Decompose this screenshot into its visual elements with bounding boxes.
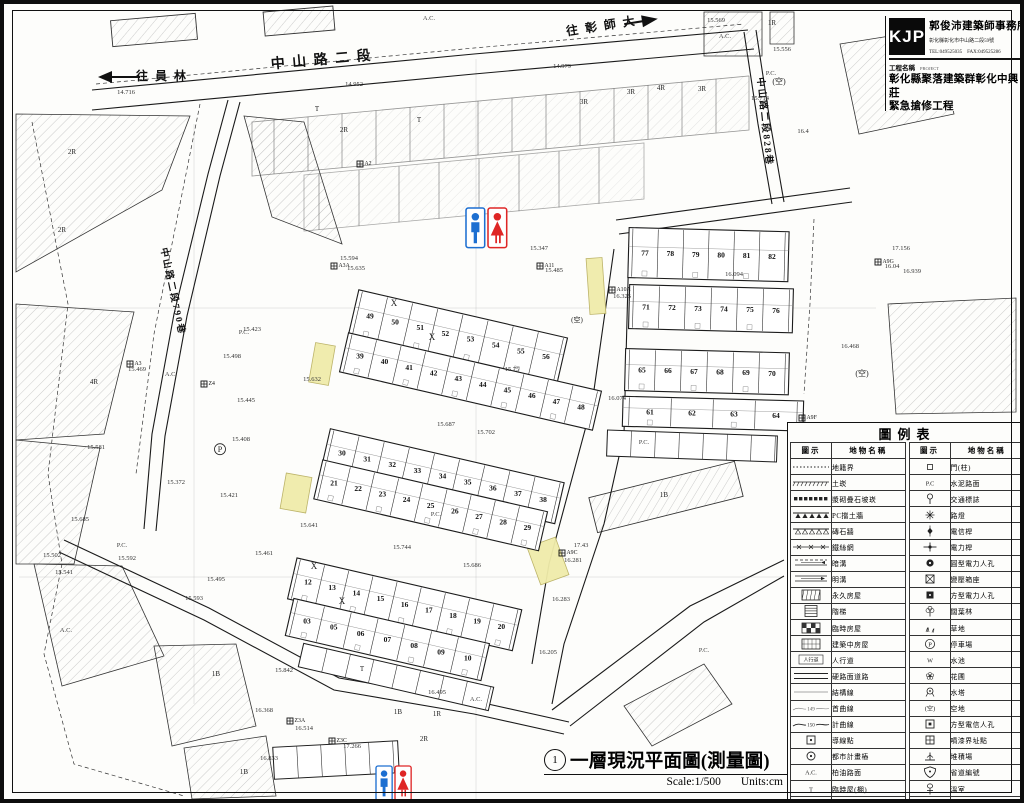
plot-number: 66 — [664, 366, 672, 375]
project-name: 彰化縣聚落建築群彰化中興莊 緊急搶修工程 — [889, 73, 1021, 114]
blocks-symbol — [791, 491, 832, 507]
elevation-label: 14.979 — [553, 63, 571, 70]
legend-feature-name: 建築中房屋 — [832, 636, 906, 652]
drawing-number-badge: 1 — [544, 749, 566, 771]
plot-number: 63 — [730, 410, 738, 419]
survey-marker-code: A9C — [567, 550, 578, 556]
plot-number: 77 — [641, 249, 649, 258]
hatched-area — [624, 664, 732, 746]
hatched-building — [263, 6, 335, 36]
legend-row: 磚砌屋 — [791, 797, 906, 803]
survey-marker-code: A2 — [365, 161, 372, 167]
plot-number: 37 — [514, 489, 522, 498]
wtower-symbol — [909, 684, 950, 700]
sidewalk-symbol: 人行道 — [791, 652, 832, 668]
elevation-label: 15.445 — [237, 397, 255, 404]
legend-feature-name: 圓型電力人孔 — [950, 555, 1024, 571]
legend-row: 149首曲線 — [791, 700, 906, 716]
plot-number: 32 — [389, 460, 397, 469]
elevation-label: 16.074 — [608, 395, 627, 402]
plot-number: 55 — [517, 346, 525, 355]
legend-row: 電力桿 — [909, 539, 1024, 555]
legend-feature-name: 結構線 — [832, 684, 906, 700]
legend-row: 圓型電力人孔 — [909, 555, 1024, 571]
legend-row: 省道編號 — [909, 764, 1024, 780]
legend-row: 暗溝 — [791, 555, 906, 571]
plot-number: 33 — [414, 466, 422, 475]
plot-number: 72 — [668, 303, 676, 312]
plot-number: 78 — [667, 249, 675, 258]
surface-type-label: P.C. — [431, 511, 442, 518]
pole-t-symbol — [909, 523, 950, 539]
elevation-label: 16.094 — [725, 271, 744, 278]
grass-symbol — [909, 620, 950, 636]
plot-number: 07 — [384, 635, 392, 644]
ditch-dash-symbol — [791, 555, 832, 571]
plot-number: 69 — [742, 368, 750, 377]
elevation-label: 15.541 — [55, 569, 73, 576]
elevation-label: 15.461 — [255, 550, 273, 557]
hatch-box-symbol — [791, 587, 832, 603]
area-type-label: 1R — [768, 19, 777, 27]
svg-text:W: W — [927, 657, 933, 664]
elevation-label: 17.43 — [574, 542, 589, 549]
legend-feature-name: 變壓箱座 — [950, 571, 1024, 587]
plot-number: 80 — [717, 250, 725, 259]
textsym-symbol: W — [909, 652, 950, 668]
plot-number: 79 — [692, 250, 700, 259]
elevation-label: 16.368 — [255, 707, 273, 714]
elevation-label: 15.423 — [243, 326, 261, 333]
parkP-symbol: P — [909, 636, 950, 652]
xfence-symbol — [791, 539, 832, 555]
legend-feature-name: 電信桿 — [950, 523, 1024, 539]
cadastral-boundary-line — [804, 219, 814, 394]
contour2-symbol: 150 — [791, 716, 832, 732]
legend-row: 土崁 — [791, 475, 906, 491]
elevation-label: 16.281 — [564, 557, 582, 564]
brick-house-symbol — [791, 797, 832, 803]
stairs-symbol — [791, 603, 832, 619]
plot-number: 50 — [391, 317, 399, 326]
legend-row: 導線點 — [791, 732, 906, 748]
legend-row: 堆積場 — [909, 748, 1024, 764]
legend-row: 方型電信人孔 — [909, 716, 1024, 732]
drawing-title-bar: 1 一層現況平面圖(測量圖) Scale:1/500 Units:cm — [544, 747, 787, 797]
pole-e-symbol — [909, 539, 950, 555]
legend-feature-name: 空地 — [950, 700, 1024, 716]
project-label: 工程名稱 — [889, 62, 915, 72]
paint-pt-symbol — [909, 732, 950, 748]
dotted-symbol — [791, 459, 832, 475]
legend-feature-name: 人行道 — [832, 652, 906, 668]
legend-feature-name: 堆積場 — [950, 748, 1024, 764]
ditch-solid-symbol — [791, 571, 832, 587]
plot-number: 70 — [768, 369, 776, 378]
legend-col-symbol: 圖示 — [791, 443, 832, 459]
survey-marker: A9C — [559, 550, 578, 556]
plot-number: 51 — [417, 323, 425, 332]
legend-row: 地籍界 — [791, 459, 906, 475]
legend-row: 人行道人行道 — [791, 652, 906, 668]
transformer-symbol — [909, 571, 950, 587]
plot-number: 44 — [479, 380, 487, 389]
plot-number: 39 — [356, 352, 364, 361]
plot-number: 22 — [354, 484, 362, 493]
elevation-label: 15.641 — [300, 522, 318, 529]
area-type-label: 1B — [240, 768, 249, 776]
plot-number: 75 — [746, 305, 754, 314]
firm-identity: KJP 郭俊沛建築師事務所 彰化縣彰化市中山路二段59號 TEL:0495250… — [889, 18, 1021, 60]
legend-table-right: 圖示 地物名稱 門(柱)P.C水泥路面交通標誌路燈電信桿電力桿圓型電力人孔變壓箱… — [909, 442, 1024, 803]
plot-number: 76 — [772, 306, 780, 315]
legend-row: 階梯 — [791, 603, 906, 619]
parking-symbol: P — [218, 445, 223, 454]
plot-number: 61 — [646, 408, 654, 417]
area-type-label: T — [417, 116, 422, 124]
plot-number: 25 — [427, 501, 435, 510]
legend-row: 明溝 — [791, 571, 906, 587]
plot-number: 15 — [377, 594, 385, 603]
plot-number: 21 — [330, 479, 338, 488]
ticks-symbol — [791, 475, 832, 491]
plot-number: 64 — [772, 411, 780, 420]
legend-feature-name: 草地 — [950, 620, 1024, 636]
legend-feature-name: 電力桿 — [950, 539, 1024, 555]
area-type-label: 2R — [340, 126, 349, 134]
area-type-label: 2R — [58, 226, 67, 234]
drawing-sheet: 4950515253545556394041424344454647483031… — [0, 0, 1024, 803]
legend-row: 變壓箱座 — [909, 571, 1024, 587]
area-type-label: 1B — [394, 708, 403, 716]
firm-telfax: TEL:049525035 FAX:049525286 — [929, 48, 1024, 55]
mh-square-symbol — [909, 587, 950, 603]
legend-feature-name: 省道編號 — [950, 764, 1024, 780]
legend-feature-name: 水流方向 — [950, 797, 1024, 803]
elevation-label: 15.75 — [505, 366, 520, 373]
plot-number: 81 — [743, 251, 751, 260]
legend-feature-name: 方型電信人孔 — [950, 716, 1024, 732]
plot-number: 52 — [442, 329, 450, 338]
road-name-label: 往 員 林 — [136, 68, 188, 83]
legend-feature-name: 都市計畫樁 — [832, 748, 906, 764]
elevation-label: 14.716 — [117, 89, 136, 96]
hatched-area — [770, 12, 794, 44]
legend-row: 水塔 — [909, 684, 1024, 700]
area-type-label: (空) — [571, 315, 583, 324]
plot-number: 05 — [330, 623, 338, 632]
elevation-label: 15.347 — [530, 245, 549, 252]
drawing-units: Units:cm — [741, 776, 783, 788]
legend-row: 建築中房屋 — [791, 636, 906, 652]
legend-col-name: 地物名稱 — [832, 443, 906, 459]
legend-row: 電信桿 — [909, 523, 1024, 539]
plot-number: 82 — [768, 252, 776, 261]
plot-number: 45 — [504, 386, 512, 395]
legend-feature-name: 導線點 — [832, 732, 906, 748]
plot-number: 10 — [464, 654, 472, 663]
flow-symbol — [909, 797, 950, 803]
plot-number: 18 — [449, 611, 457, 620]
project-label-en: PROJECT — [920, 66, 939, 71]
legend-row: 花圃 — [909, 668, 1024, 684]
legend-row: W水池 — [909, 652, 1024, 668]
legend-feature-name: 水塔 — [950, 684, 1024, 700]
area-type-label: 2R — [68, 148, 77, 156]
textsym-symbol: T — [791, 780, 832, 796]
svg-text:P.C: P.C — [925, 480, 933, 487]
area-type-label: (空) — [772, 76, 786, 86]
elevation-label: 15.502 — [43, 552, 61, 559]
plot-number: 03 — [303, 617, 311, 626]
tree-symbol — [909, 603, 950, 619]
circ-dot-symbol — [791, 748, 832, 764]
elevation-label: 16.939 — [903, 268, 921, 275]
legend-row: 都市計畫樁 — [791, 748, 906, 764]
surface-type-label: A.C. — [719, 33, 732, 40]
svg-text:149: 149 — [807, 708, 815, 713]
plot-number: 19 — [473, 617, 481, 626]
plot-number: 46 — [528, 391, 536, 400]
area-type-label: 3R — [698, 85, 707, 93]
legend-row: P.C水泥路面 — [909, 475, 1024, 491]
legend-feature-name: PC擋土牆 — [832, 507, 906, 523]
legend-feature-name: 土崁 — [832, 475, 906, 491]
elevation-label: 15.687 — [437, 421, 456, 428]
elevation-label: 15.556 — [773, 46, 792, 53]
area-type-label: (空) — [855, 368, 869, 378]
elevation-label: 15.469 — [128, 366, 146, 373]
plot-number: 68 — [716, 368, 724, 377]
plot-number: 08 — [410, 641, 418, 650]
svg-text:P: P — [928, 641, 932, 648]
plot-number: 27 — [475, 512, 483, 521]
legend-row: T臨時屋(棚) — [791, 780, 906, 796]
legend-row: 路燈 — [909, 507, 1024, 523]
elevation-label: 15.632 — [303, 376, 321, 383]
elevation-label: 15.635 — [347, 265, 365, 272]
x-mark: X — [391, 298, 398, 308]
legend-row: 門(柱) — [909, 459, 1024, 475]
plot-number: 54 — [492, 341, 500, 350]
elevation-label: 15.702 — [477, 429, 495, 436]
legend-feature-name: 地籍界 — [832, 459, 906, 475]
surface-type-label: A.C. — [60, 627, 73, 634]
plot-number: 26 — [451, 506, 459, 515]
legend-feature-name: 階梯 — [832, 603, 906, 619]
building-row — [629, 285, 794, 333]
elevation-label: 15.581 — [87, 444, 105, 451]
plot-number: 67 — [690, 367, 698, 376]
plot-number: 71 — [642, 303, 650, 312]
firm-name: 郭俊沛建築師事務所 — [929, 18, 1024, 33]
elevation-label: 17.266 — [343, 743, 362, 750]
plot-number: 49 — [366, 312, 374, 321]
survey-marker: Z4 — [201, 381, 215, 387]
road-edge — [616, 188, 850, 220]
dbl-line-symbol — [791, 668, 832, 684]
plot-number: 06 — [357, 629, 365, 638]
legend-feature-name: 停車場 — [950, 636, 1024, 652]
legend-row: 草地 — [909, 620, 1024, 636]
plot-number: 17 — [425, 605, 433, 614]
legend-feature-name: 闊葉林 — [950, 603, 1024, 619]
surface-type-label: P.C. — [699, 647, 710, 654]
legend-row: P停車場 — [909, 636, 1024, 652]
mh-tel-symbol — [909, 716, 950, 732]
elevation-label: 15.421 — [220, 492, 238, 499]
elevation-label: 16.514 — [295, 725, 314, 732]
area-type-label: T — [315, 105, 320, 113]
plot-number: 24 — [403, 495, 411, 504]
svg-text:150: 150 — [807, 724, 815, 729]
area-type-label: 3R — [627, 88, 636, 96]
legend-row: A.C.柏油路面 — [791, 764, 906, 780]
plot-number: 13 — [328, 583, 336, 592]
greenhouse-symbol — [909, 780, 950, 796]
elevation-label: 15.685 — [71, 516, 89, 523]
legend-table-left: 圖示 地物名稱 地籍界土崁漿砌疊石坡崁PC擋土牆磚石牆鐵絲網暗溝明溝永久房屋階梯… — [790, 442, 906, 803]
legend-feature-name: 柏油路面 — [832, 764, 906, 780]
plot-number: 09 — [437, 647, 445, 656]
elevation-label: 16.468 — [841, 343, 859, 350]
legend-feature-name: 鐵絲網 — [832, 539, 906, 555]
survey-marker: Z3A — [287, 718, 306, 724]
legend-row: 硬路面道路 — [791, 668, 906, 684]
surface-type-label: P.C. — [766, 70, 777, 77]
survey-marker-code: Z4 — [209, 381, 216, 387]
highlighted-structure — [280, 473, 312, 513]
elevation-label: 16.04 — [885, 263, 900, 270]
hatched-area — [888, 298, 1016, 414]
legend-panel: 圖例表 圖示 地物名稱 地籍界土崁漿砌疊石坡崁PC擋土牆磚石牆鐵絲網暗溝明溝永久… — [787, 422, 1024, 802]
plot-number: 43 — [454, 374, 462, 383]
hatched-area — [34, 564, 164, 686]
hatched-building — [111, 13, 198, 46]
legend-row: 交通標誌 — [909, 491, 1024, 507]
legend-feature-name: 門(柱) — [950, 459, 1024, 475]
plot-number: 16 — [401, 600, 409, 609]
elevation-label: 15.498 — [223, 353, 241, 360]
hatch-box2-symbol — [791, 636, 832, 652]
surface-type-label: P.C. — [117, 542, 128, 549]
textsym-symbol: A.C. — [791, 764, 832, 780]
x-mark: X — [429, 332, 436, 342]
arrow-to-changhua-normal-univ — [641, 13, 659, 27]
drawing-title: 一層現況平面圖(測量圖) — [570, 747, 770, 773]
hatched-area — [154, 644, 256, 746]
legend-feature-name: 明溝 — [832, 571, 906, 587]
surface-type-label: P.C. — [639, 439, 650, 446]
area-type-label: 1B — [660, 491, 669, 499]
hatched-area — [16, 440, 100, 564]
textsym-symbol: (空) — [909, 700, 950, 716]
plot-number: 47 — [553, 397, 561, 406]
elevation-label: 15.744 — [393, 544, 412, 551]
highlighted-structure — [586, 258, 606, 315]
plot-number: 31 — [363, 454, 371, 463]
plot-number: 20 — [498, 622, 506, 631]
legend-row: PC擋土牆 — [791, 507, 906, 523]
plot-number: 30 — [338, 449, 346, 458]
elevation-label: 16.4 — [797, 128, 809, 135]
legend-feature-name: 臨時屋(棚) — [832, 780, 906, 796]
plot-number: 29 — [524, 523, 532, 532]
legend-feature-name: 交通標誌 — [950, 491, 1024, 507]
legend-title: 圖例表 — [790, 424, 1024, 442]
elevation-label: 15.686 — [463, 562, 482, 569]
legend-feature-name: 路燈 — [950, 507, 1024, 523]
surface-type-label: A.C. — [470, 696, 483, 703]
elevation-label: 15.593 — [185, 595, 203, 602]
plot-number: 56 — [542, 352, 550, 361]
legend-row: 永久房屋 — [791, 587, 906, 603]
legend-feature-name: 永久房屋 — [832, 587, 906, 603]
elevation-label: 17.156 — [892, 245, 911, 252]
legend-row: 水流方向 — [909, 797, 1024, 803]
contour-symbol: 149 — [791, 700, 832, 716]
plot-number: 40 — [381, 357, 389, 366]
legend-feature-name: 暗溝 — [832, 555, 906, 571]
svg-text:人行道: 人行道 — [803, 656, 818, 663]
legend-row: 噴漆界址點 — [909, 732, 1024, 748]
svg-text:(空): (空) — [924, 704, 934, 712]
sq-dot-symbol — [791, 732, 832, 748]
legend-col-symbol: 圖示 — [909, 443, 950, 459]
legend-feature-name: 漿砌疊石坡崁 — [832, 491, 906, 507]
plot-number: 23 — [379, 490, 387, 499]
survey-marker-code: Z3A — [295, 718, 306, 724]
legend-row: 結構線 — [791, 684, 906, 700]
svg-text:T: T — [809, 786, 813, 793]
thin-line-symbol — [791, 684, 832, 700]
plot-number: 28 — [499, 518, 507, 527]
elevation-label: 15.408 — [232, 436, 250, 443]
building-row — [625, 349, 790, 395]
plot-number: 42 — [430, 369, 438, 378]
elevation-label: 16.205 — [539, 649, 557, 656]
area-type-label: 2R — [420, 735, 429, 743]
plot-number: 73 — [694, 304, 702, 313]
hatched-area — [16, 304, 134, 440]
plot-number: 36 — [489, 483, 497, 492]
elevation-label: 15.714 — [751, 95, 770, 102]
plot-number: 34 — [439, 472, 447, 481]
tri-open-symbol — [791, 523, 832, 539]
title-block: KJP 郭俊沛建築師事務所 彰化縣彰化市中山路二段59號 TEL:0495250… — [885, 16, 1024, 111]
legend-feature-name: 溫室 — [950, 780, 1024, 796]
legend-feature-name: 磚石牆 — [832, 523, 906, 539]
area-type-label: 4R — [90, 378, 99, 386]
legend-feature-name: 方型電力人孔 — [950, 587, 1024, 603]
plot-number: 53 — [467, 335, 475, 344]
elevation-label: 16.325 — [613, 293, 631, 300]
legend-feature-name: 硬路面道路 — [832, 668, 906, 684]
legend-feature-name: 花圃 — [950, 668, 1024, 684]
hatched-area — [184, 736, 276, 799]
firm-logo: KJP — [889, 18, 925, 55]
drawing-scale: Scale:1/500 — [667, 776, 721, 788]
tri-solid-symbol — [791, 507, 832, 523]
elevation-label: 15.569 — [707, 17, 725, 24]
building-row — [628, 228, 789, 282]
legend-feature-name: 磚砌屋 — [832, 797, 906, 803]
legend-feature-name: 水池 — [950, 652, 1024, 668]
pile-symbol — [909, 748, 950, 764]
legend-row: (空)空地 — [909, 700, 1024, 716]
plot-number: 14 — [353, 589, 361, 598]
elevation-label: 16.283 — [552, 596, 570, 603]
